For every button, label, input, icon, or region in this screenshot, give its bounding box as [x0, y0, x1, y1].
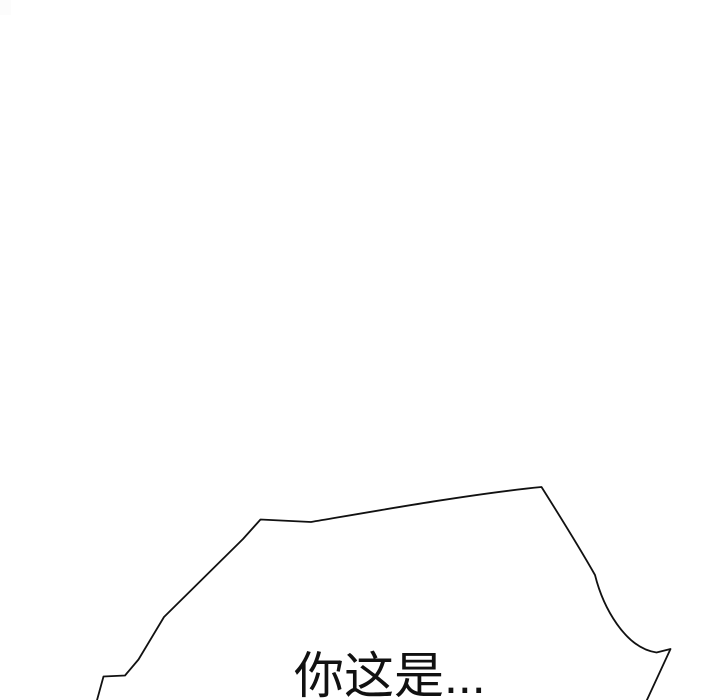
comic-panel: 你这是... — [0, 0, 720, 700]
speech-text: 你这是... — [294, 651, 486, 700]
speech-bubble — [0, 0, 720, 700]
